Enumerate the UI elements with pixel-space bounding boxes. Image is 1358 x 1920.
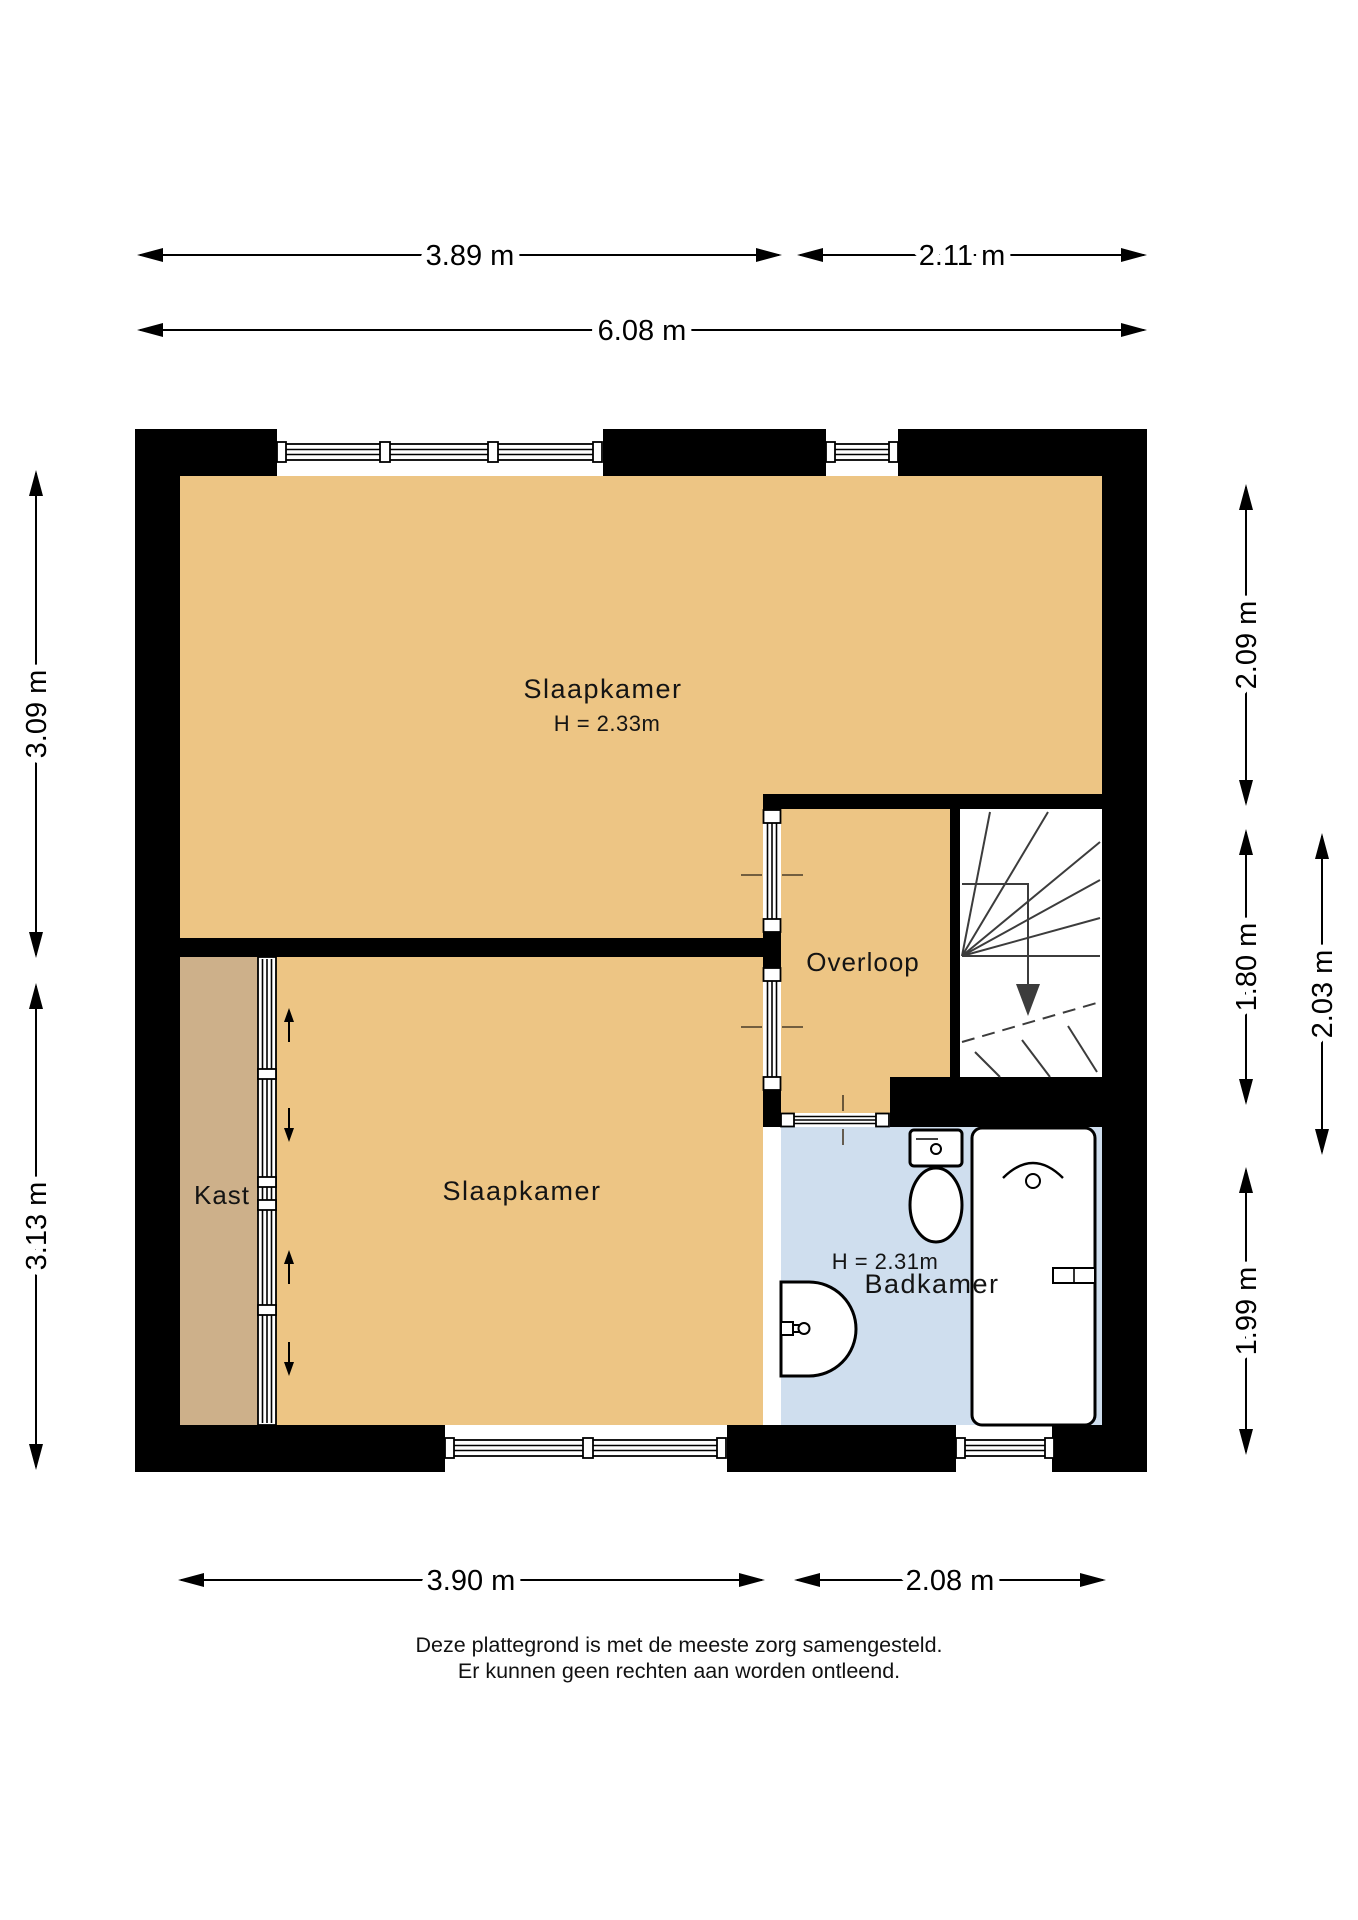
dimension-label: 1.80 m bbox=[1231, 923, 1263, 1012]
dimension-right-middle: 1.80 m bbox=[1231, 829, 1263, 1105]
dimension-arrowhead bbox=[137, 248, 163, 262]
dimension-label: 2.11 m bbox=[919, 240, 1006, 272]
dimension-label: 3.09 m bbox=[21, 670, 53, 759]
dimension-top-left: 3.89 m bbox=[137, 240, 782, 272]
dimension-arrowhead bbox=[756, 248, 782, 262]
floorplan-canvas: Slaapkamer H = 2.33m Overloop Kast Slaap… bbox=[0, 0, 1358, 1920]
window-frame bbox=[830, 444, 894, 460]
door-endcap bbox=[781, 1114, 794, 1127]
label-overloop: Overloop bbox=[806, 947, 920, 977]
window-endcap bbox=[445, 1438, 454, 1458]
dimension-top-right: 2.11 m bbox=[797, 240, 1147, 272]
window-frame bbox=[960, 1440, 1048, 1456]
toilet-flush-button bbox=[931, 1144, 941, 1154]
dimension-right-upper: 2.09 m bbox=[1231, 484, 1263, 806]
wall-bedroom-divider bbox=[180, 938, 781, 957]
wall-overloop-top bbox=[763, 794, 1147, 809]
dimension-arrowhead bbox=[1239, 484, 1253, 510]
disclaimer-line-2: Er kunnen geen rechten aan worden ontlee… bbox=[458, 1659, 900, 1683]
wall-badkamer-top bbox=[890, 1077, 1147, 1127]
dimension-bottom-right: 2.08 m bbox=[794, 1565, 1106, 1597]
sink-faucet-base bbox=[781, 1322, 793, 1335]
dimension-label: 2.08 m bbox=[906, 1565, 995, 1597]
dimension-arrowhead bbox=[1121, 323, 1147, 337]
dimension-top-total: 6.08 m bbox=[137, 315, 1147, 347]
floor-slaapkamer-top-left bbox=[180, 476, 763, 938]
dimension-label: 1.99 m bbox=[1231, 1267, 1263, 1356]
door-endcap bbox=[876, 1114, 889, 1127]
window-endcap bbox=[593, 442, 602, 462]
window-top-large bbox=[277, 429, 603, 476]
dimension-right-outer: 2.03 m bbox=[1307, 833, 1339, 1155]
dimension-label: 6.08 m bbox=[598, 315, 687, 347]
dimension-arrowhead bbox=[1239, 1079, 1253, 1105]
window-endcap bbox=[826, 442, 835, 462]
dimension-arrowhead bbox=[29, 470, 43, 496]
label-slaapkamer-top: Slaapkamer bbox=[523, 674, 682, 704]
closet-door-break bbox=[258, 1177, 276, 1187]
bathtub-drain bbox=[1026, 1174, 1040, 1188]
window-endcap bbox=[956, 1438, 965, 1458]
dimension-arrowhead bbox=[29, 1444, 43, 1470]
window-mullion bbox=[583, 1438, 593, 1458]
dimension-arrowhead bbox=[178, 1573, 204, 1587]
window-frame bbox=[281, 444, 599, 460]
label-slaapkamer-top-height: H = 2.33m bbox=[554, 711, 661, 736]
dimension-arrowhead bbox=[1315, 1129, 1329, 1155]
wall-right bbox=[1102, 429, 1147, 1472]
closet-door-break bbox=[258, 1200, 276, 1210]
sink-faucet-head bbox=[799, 1323, 810, 1334]
dimension-arrowhead bbox=[1315, 833, 1329, 859]
dimension-arrowhead bbox=[794, 1573, 820, 1587]
door-endcap bbox=[764, 810, 781, 823]
dimension-arrowhead bbox=[1239, 780, 1253, 806]
dimension-arrowhead bbox=[1239, 1167, 1253, 1193]
label-badkamer: Badkamer bbox=[864, 1269, 999, 1299]
window-mullion bbox=[380, 442, 390, 462]
closet-door-break bbox=[258, 1305, 276, 1315]
window-top-small bbox=[826, 429, 898, 476]
closet-door-break bbox=[258, 1069, 276, 1079]
toilet-fixture bbox=[910, 1130, 962, 1242]
window-endcap bbox=[889, 442, 898, 462]
window-bottom-left bbox=[445, 1425, 727, 1472]
dimension-label: 2.09 m bbox=[1231, 601, 1263, 690]
window-bottom-right bbox=[956, 1425, 1054, 1472]
door-endcap bbox=[764, 968, 781, 981]
dimension-label: 2.03 m bbox=[1307, 950, 1339, 1039]
door-endcap bbox=[764, 919, 781, 932]
disclaimer-line-1: Deze plattegrond is met de meeste zorg s… bbox=[415, 1633, 942, 1657]
dimension-label: 3.89 m bbox=[426, 240, 515, 272]
window-endcap bbox=[717, 1438, 726, 1458]
door-endcap bbox=[764, 1077, 781, 1090]
dimension-arrowhead bbox=[1239, 829, 1253, 855]
dimension-label: 3.13 m bbox=[21, 1182, 53, 1271]
window-endcap bbox=[1045, 1438, 1054, 1458]
dimension-left-lower: 3.13 m bbox=[21, 983, 53, 1470]
dimension-arrowhead bbox=[1239, 1429, 1253, 1455]
dimension-arrowhead bbox=[797, 248, 823, 262]
wall-left bbox=[135, 429, 180, 1472]
toilet-bowl bbox=[910, 1168, 962, 1242]
dimension-right-lower: 1.99 m bbox=[1231, 1167, 1263, 1455]
floor-stairs bbox=[960, 809, 1102, 1077]
dimension-arrowhead bbox=[1121, 248, 1147, 262]
window-endcap bbox=[277, 442, 286, 462]
dimension-arrowhead bbox=[137, 323, 163, 337]
window-mullion bbox=[488, 442, 498, 462]
dimension-arrowhead bbox=[739, 1573, 765, 1587]
wall-stairs-left bbox=[950, 809, 960, 1077]
dimension-left-upper: 3.09 m bbox=[21, 470, 53, 958]
label-slaapkamer-bottom: Slaapkamer bbox=[442, 1176, 601, 1206]
dimension-arrowhead bbox=[29, 983, 43, 1009]
dimension-label: 3.90 m bbox=[427, 1565, 516, 1597]
dimension-arrowhead bbox=[29, 932, 43, 958]
footer-disclaimer: Deze plattegrond is met de meeste zorg s… bbox=[415, 1633, 942, 1683]
closet-doors bbox=[258, 957, 276, 1425]
label-kast: Kast bbox=[194, 1180, 250, 1210]
floorplan-page: Slaapkamer H = 2.33m Overloop Kast Slaap… bbox=[0, 0, 1358, 1920]
dimension-arrowhead bbox=[1080, 1573, 1106, 1587]
dimension-bottom-left: 3.90 m bbox=[178, 1565, 765, 1597]
